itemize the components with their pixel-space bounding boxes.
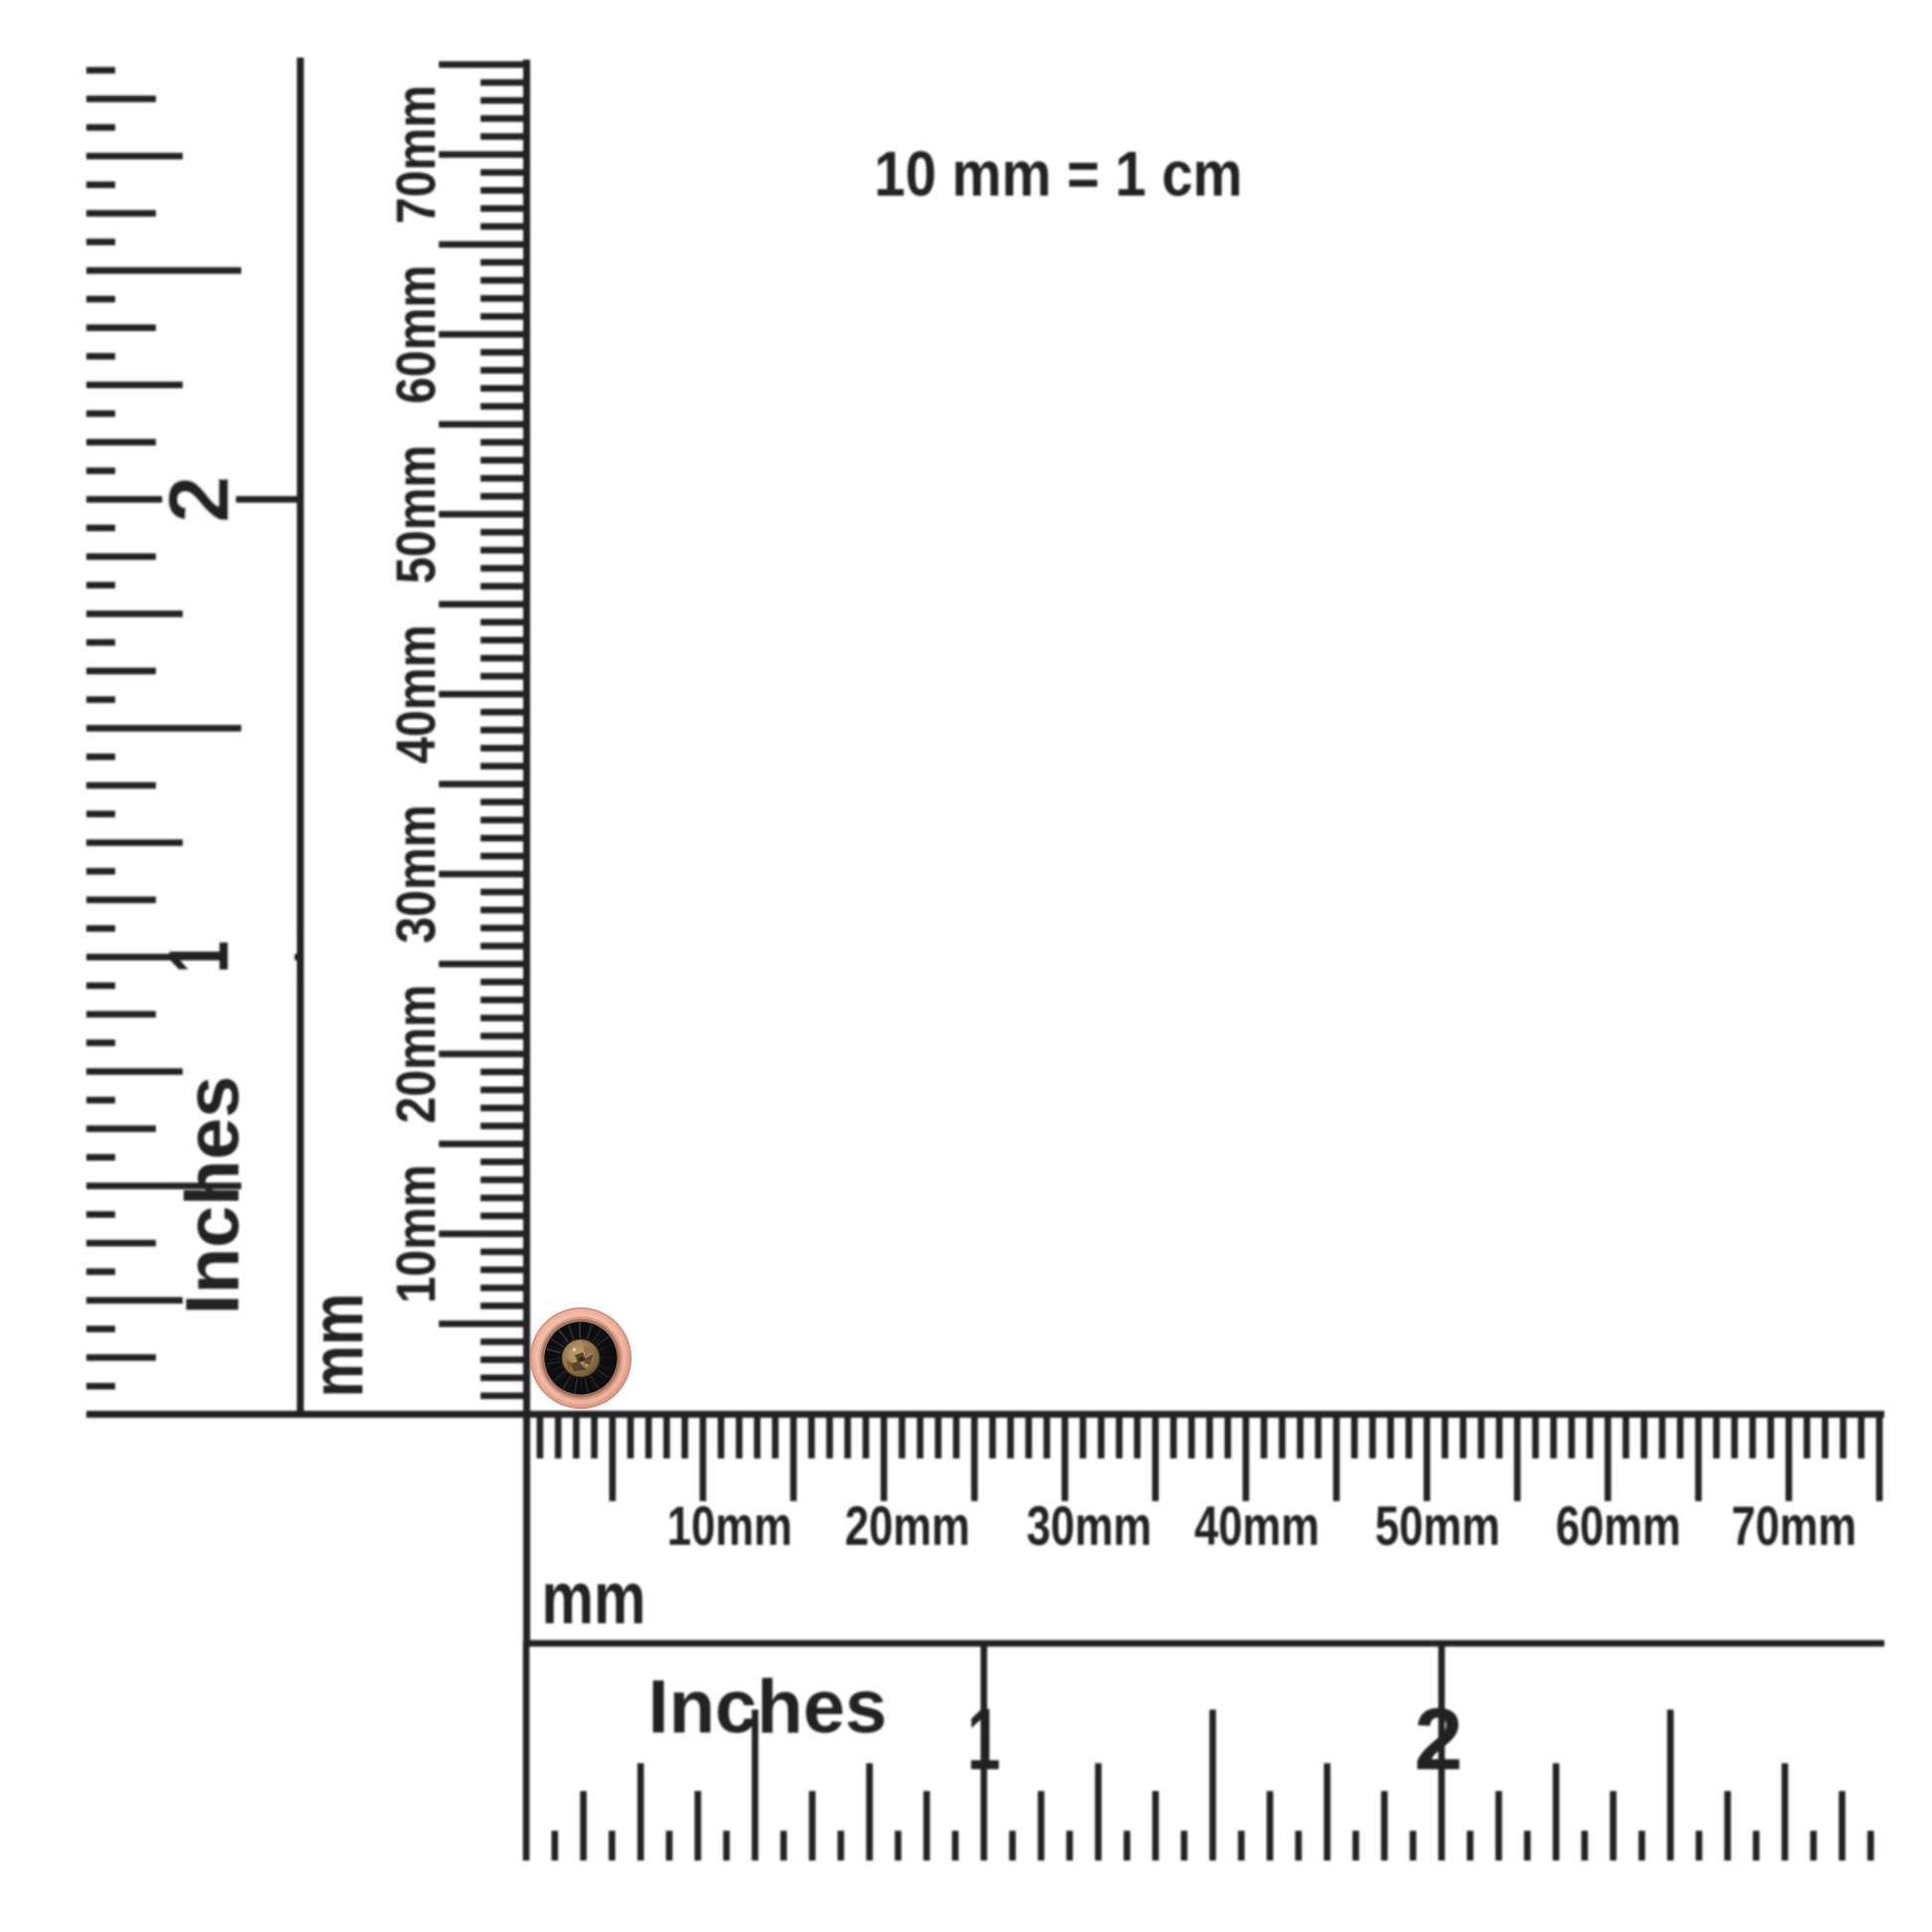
svg-text:50mm: 50mm [384,445,447,584]
svg-text:10mm: 10mm [667,1494,792,1557]
svg-text:1: 1 [967,1690,1000,1787]
svg-text:mm: mm [296,1294,378,1398]
svg-text:60mm: 60mm [384,265,447,404]
svg-text:20mm: 20mm [845,1494,970,1557]
svg-text:70mm: 70mm [384,85,447,224]
svg-text:40mm: 40mm [384,624,447,763]
svg-text:70mm: 70mm [1731,1494,1857,1557]
svg-text:mm: mm [542,1557,646,1639]
svg-text:40mm: 40mm [1194,1494,1319,1557]
svg-text:30mm: 30mm [1027,1494,1152,1557]
svg-text:20mm: 20mm [384,985,447,1124]
svg-text:10 mm = 1 cm: 10 mm = 1 cm [875,138,1243,209]
svg-text:60mm: 60mm [1556,1494,1681,1557]
svg-text:1: 1 [151,941,247,974]
svg-text:2: 2 [1415,1690,1463,1788]
svg-text:2: 2 [152,476,247,523]
svg-text:Inches: Inches [648,1665,888,1749]
svg-text:50mm: 50mm [1375,1494,1500,1557]
svg-text:Inches: Inches [171,1076,255,1315]
svg-text:10mm: 10mm [384,1165,447,1304]
svg-text:30mm: 30mm [384,804,447,943]
